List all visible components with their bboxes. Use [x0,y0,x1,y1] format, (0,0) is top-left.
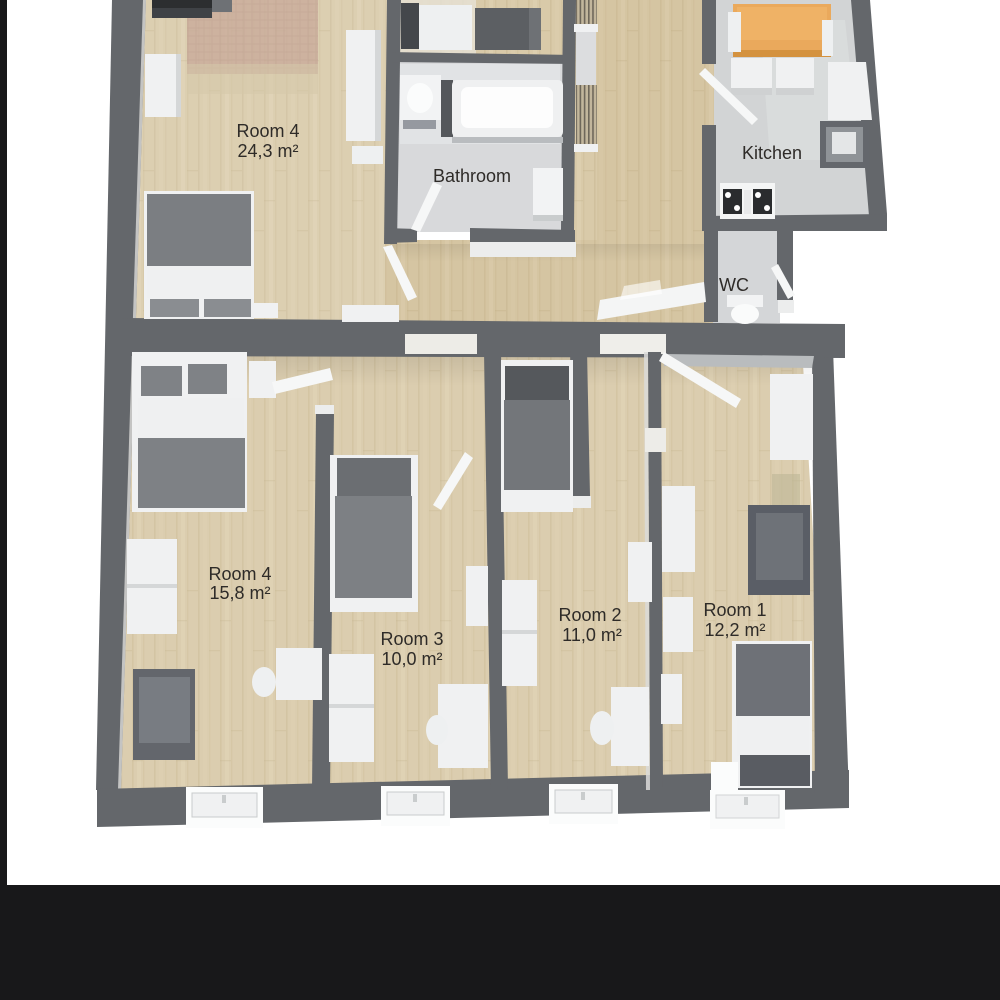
svg-text:WC: WC [719,275,749,295]
svg-text:Bathroom: Bathroom [433,166,511,186]
svg-text:Room 3: Room 3 [380,629,443,649]
svg-text:Room 4: Room 4 [208,564,271,584]
svg-text:15,8 m²: 15,8 m² [209,583,270,603]
svg-text:10,0 m²: 10,0 m² [381,649,442,669]
svg-text:24,3 m²: 24,3 m² [237,141,298,161]
svg-text:Kitchen: Kitchen [742,143,802,163]
svg-text:12,2 m²: 12,2 m² [704,620,765,640]
svg-text:Room 1: Room 1 [703,600,766,620]
svg-text:11,0 m²: 11,0 m² [562,625,622,645]
svg-text:Room 4: Room 4 [236,121,299,141]
svg-text:Room 2: Room 2 [558,605,621,625]
